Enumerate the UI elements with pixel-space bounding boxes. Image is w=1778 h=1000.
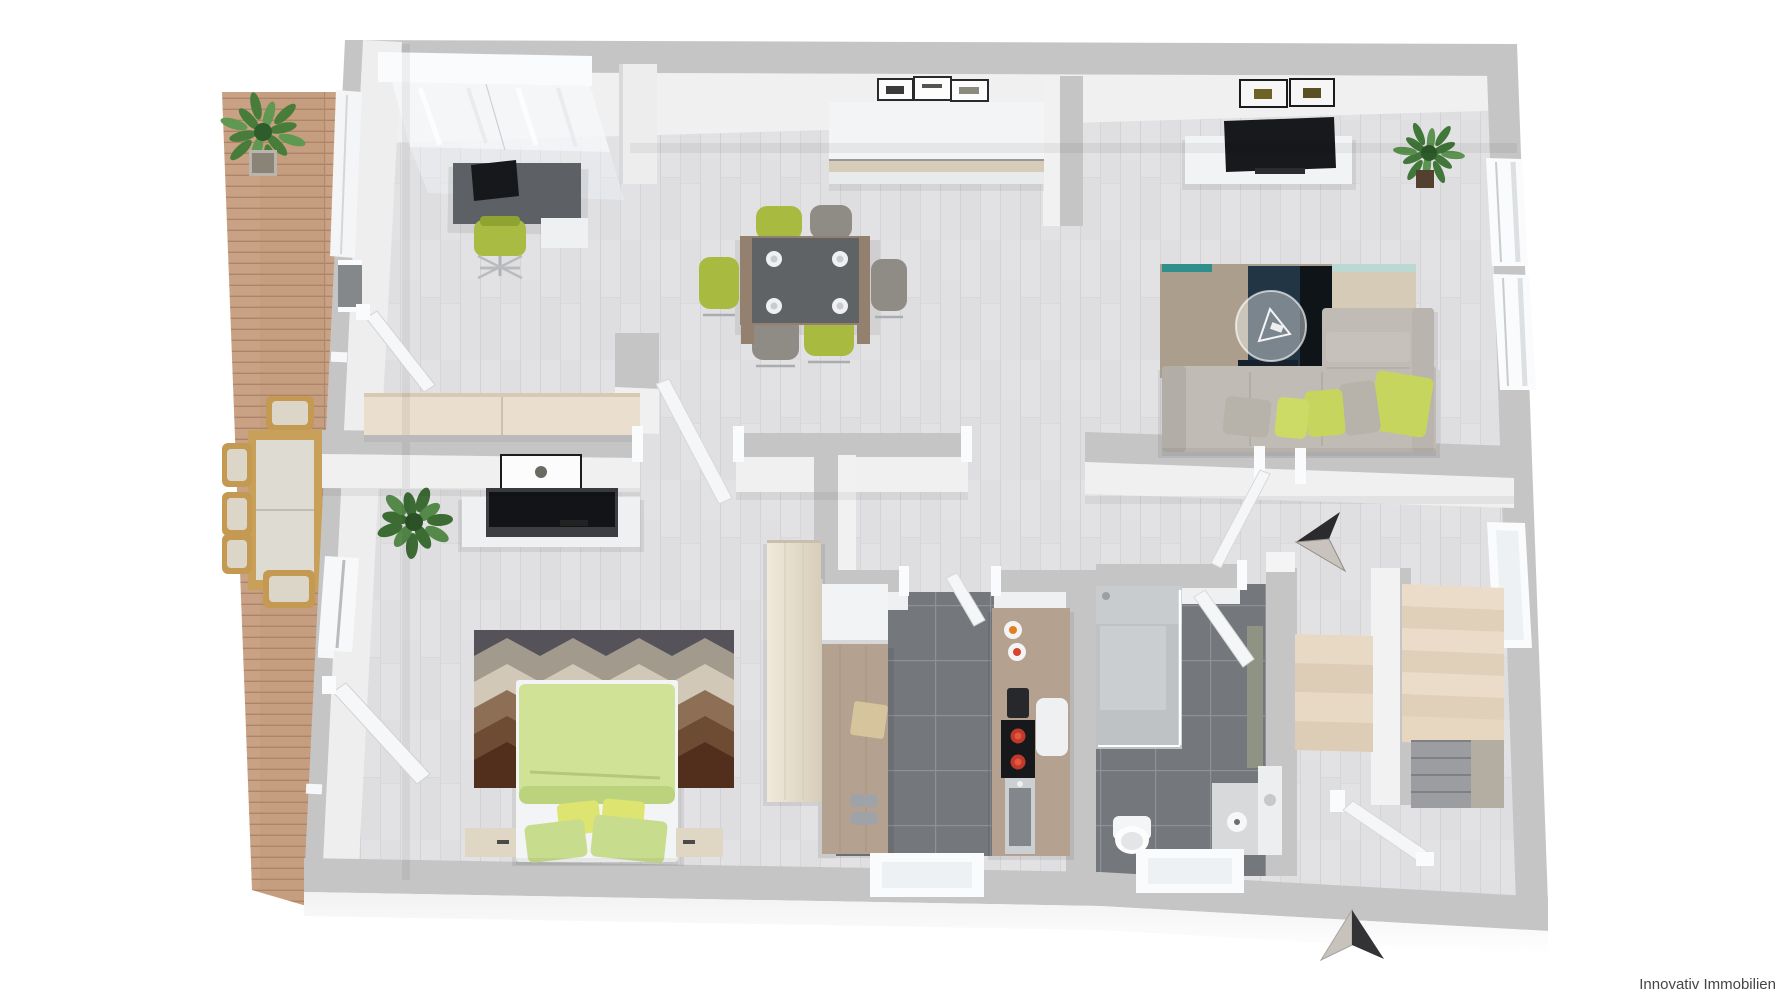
svg-text:Innovativ Immobilien: Innovativ Immobilien xyxy=(1639,976,1776,993)
